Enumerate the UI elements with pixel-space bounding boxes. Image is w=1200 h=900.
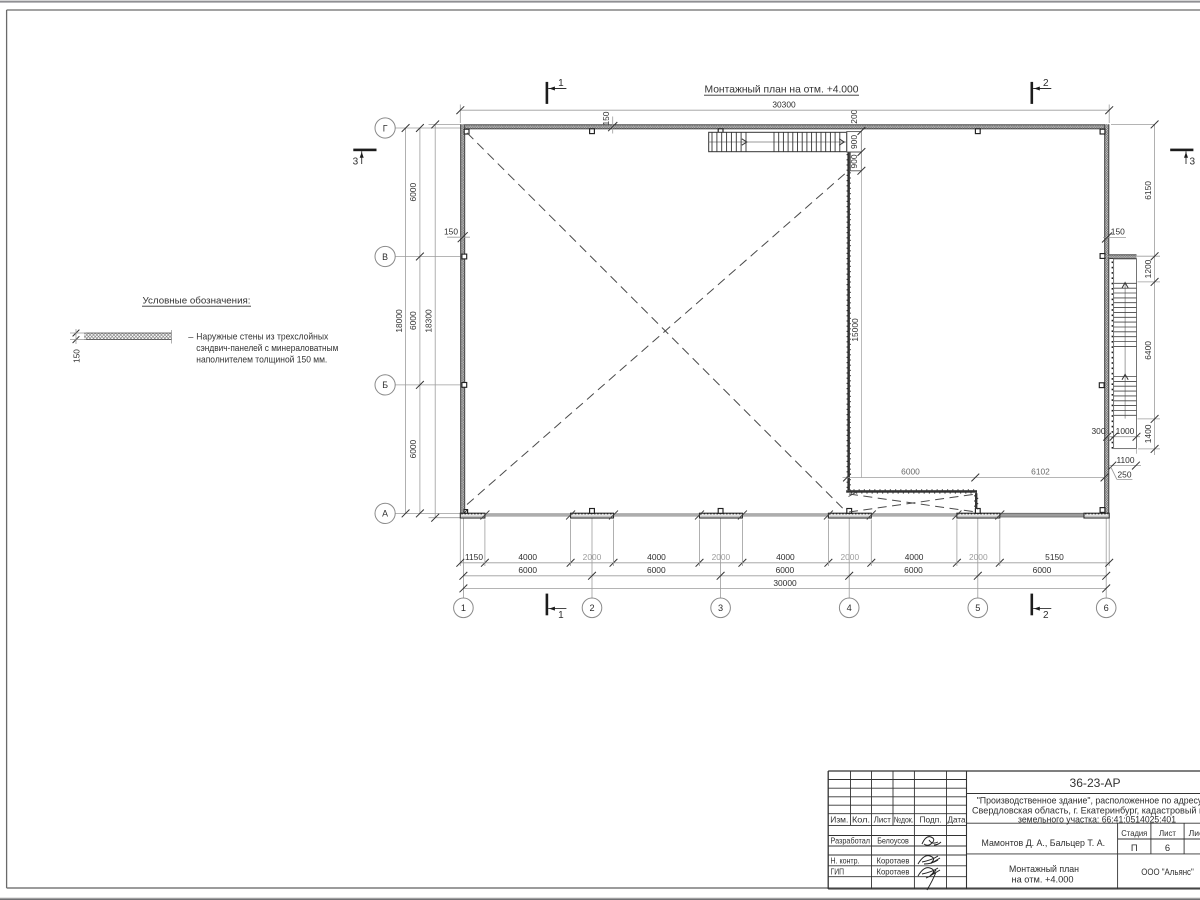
svg-text:900: 900: [849, 135, 859, 149]
svg-text:150: 150: [1111, 226, 1125, 236]
svg-text:земельного участка: 66:41:0514: земельного участка: 66:41:0514025:401: [1018, 814, 1176, 824]
svg-text:6: 6: [1104, 603, 1109, 613]
svg-text:П: П: [1131, 842, 1138, 853]
svg-text:Белоусов: Белоусов: [877, 837, 909, 846]
svg-text:Коротаев: Коротаев: [877, 857, 910, 866]
svg-text:6000: 6000: [647, 565, 666, 575]
svg-text:1000: 1000: [1116, 426, 1135, 436]
svg-text:1: 1: [461, 603, 466, 613]
svg-text:Лист: Лист: [1159, 828, 1176, 838]
svg-text:15000: 15000: [850, 318, 860, 342]
svg-text:30300: 30300: [772, 100, 796, 110]
svg-text:18300: 18300: [423, 309, 433, 333]
svg-text:6000: 6000: [408, 439, 418, 458]
svg-text:6000: 6000: [408, 311, 418, 330]
svg-text:Монтажный план: Монтажный план: [1009, 863, 1079, 874]
svg-text:5: 5: [975, 603, 980, 613]
svg-text:сэндвич-панелей с минераловатн: сэндвич-панелей с минераловатным: [196, 343, 338, 353]
svg-text:ООО "Альянс": ООО "Альянс": [1141, 866, 1194, 877]
svg-text:5150: 5150: [1045, 552, 1064, 562]
svg-text:"Производственное здание", рас: "Производственное здание", расположенное…: [977, 795, 1200, 805]
svg-text:4000: 4000: [518, 552, 537, 562]
svg-text:Условные обозначения:: Условные обозначения:: [143, 294, 251, 305]
svg-text:4000: 4000: [776, 552, 795, 562]
svg-text:3: 3: [1190, 157, 1196, 168]
svg-text:Дата: Дата: [948, 814, 966, 824]
svg-text:Б: Б: [382, 380, 388, 390]
svg-text:1: 1: [558, 610, 564, 621]
svg-text:150: 150: [601, 111, 611, 125]
svg-text:2: 2: [1043, 610, 1049, 621]
svg-text:1400: 1400: [1143, 424, 1153, 443]
svg-text:36-23-АР: 36-23-АР: [1070, 776, 1121, 790]
svg-text:6000: 6000: [518, 565, 537, 575]
svg-text:Мамонтов Д. А., Бальцер Т. А.: Мамонтов Д. А., Бальцер Т. А.: [982, 837, 1106, 848]
svg-text:А: А: [382, 509, 388, 519]
svg-text:№док.: №док.: [894, 814, 914, 824]
svg-text:900: 900: [849, 154, 859, 168]
svg-text:1100: 1100: [1116, 455, 1134, 465]
svg-text:4000: 4000: [647, 552, 666, 562]
svg-text:Разработал: Разработал: [831, 837, 871, 846]
svg-text:2000: 2000: [583, 552, 602, 562]
svg-text:18000: 18000: [394, 309, 404, 333]
svg-text:наполнителем толщиной 150 мм.: наполнителем толщиной 150 мм.: [196, 355, 327, 365]
svg-text:6000: 6000: [901, 467, 920, 477]
svg-text:1200: 1200: [1143, 259, 1153, 278]
svg-text:6000: 6000: [1033, 565, 1052, 575]
svg-text:на отм. +4.000: на отм. +4.000: [1012, 874, 1074, 885]
svg-text:2000: 2000: [969, 552, 988, 562]
svg-text:ГИП: ГИП: [831, 868, 845, 877]
svg-text:Коротаев: Коротаев: [877, 868, 910, 877]
svg-text:Лис: Лис: [1189, 828, 1200, 838]
svg-text:2: 2: [1043, 78, 1049, 89]
svg-text:4000: 4000: [905, 552, 924, 562]
svg-text:Подп.: Подп.: [920, 814, 942, 824]
svg-text:Кол.: Кол.: [852, 814, 870, 824]
svg-text:1: 1: [558, 78, 564, 89]
svg-text:Н. контр.: Н. контр.: [831, 857, 860, 866]
svg-text:Г: Г: [383, 123, 388, 133]
svg-text:6150: 6150: [1143, 181, 1153, 200]
svg-text:В: В: [382, 252, 388, 262]
svg-text:Монтажный план на отм. +4.000: Монтажный план на отм. +4.000: [705, 84, 859, 95]
svg-text:200: 200: [849, 109, 859, 123]
svg-text:6102: 6102: [1031, 467, 1050, 477]
svg-text:3: 3: [353, 157, 359, 168]
svg-text:3: 3: [718, 603, 723, 613]
svg-text:4: 4: [847, 603, 852, 613]
svg-text:6000: 6000: [776, 565, 795, 575]
svg-text:300: 300: [1092, 426, 1106, 436]
svg-text:Наружные стены из трехслойных: Наружные стены из трехслойных: [196, 332, 328, 342]
svg-text:30000: 30000: [773, 578, 797, 588]
svg-text:150: 150: [444, 226, 458, 236]
svg-text:6400: 6400: [1143, 341, 1153, 360]
svg-text:1150: 1150: [465, 552, 483, 562]
svg-text:–: –: [188, 332, 194, 342]
svg-text:250: 250: [1118, 470, 1132, 480]
svg-text:Стадия: Стадия: [1121, 828, 1147, 838]
svg-text:2000: 2000: [712, 552, 731, 562]
svg-text:6000: 6000: [904, 565, 923, 575]
svg-text:Изм.: Изм.: [830, 814, 848, 824]
svg-text:150: 150: [73, 349, 82, 363]
svg-text:6: 6: [1165, 842, 1170, 853]
svg-text:2: 2: [589, 603, 594, 613]
svg-text:6000: 6000: [408, 183, 418, 202]
svg-text:2000: 2000: [840, 552, 859, 562]
svg-text:Лист: Лист: [874, 814, 891, 824]
